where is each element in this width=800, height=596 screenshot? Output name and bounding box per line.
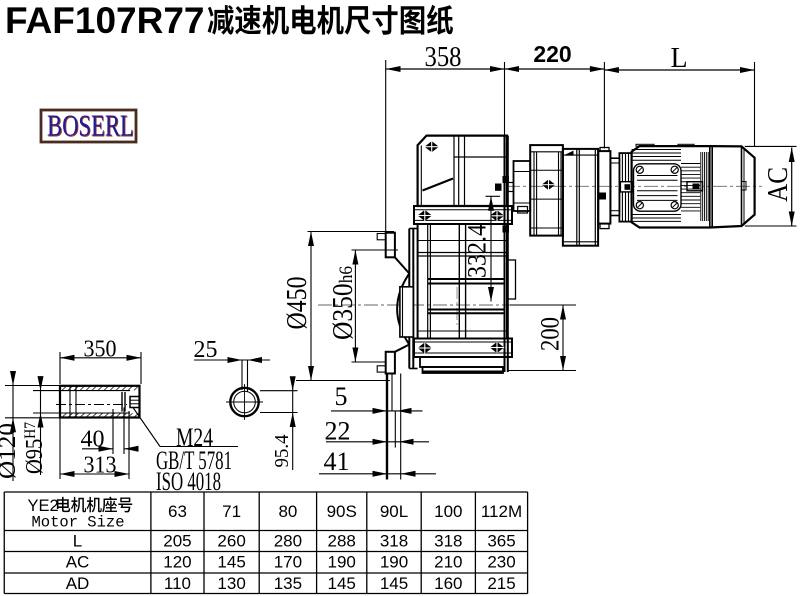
svg-text:BOSERL: BOSERL <box>47 108 134 142</box>
svg-text:110: 110 <box>164 574 191 593</box>
svg-text:230: 230 <box>487 553 515 572</box>
svg-text:288: 288 <box>328 532 356 551</box>
svg-text:170: 170 <box>274 553 302 572</box>
svg-text:100: 100 <box>434 502 462 521</box>
svg-text:318: 318 <box>434 532 462 551</box>
svg-text:YE2: YE2 <box>28 497 59 515</box>
svg-text:Ø450: Ø450 <box>282 277 313 330</box>
svg-text:190: 190 <box>328 553 356 572</box>
svg-text:210: 210 <box>434 553 462 572</box>
svg-text:90S: 90S <box>327 502 357 521</box>
svg-text:AD: AD <box>66 574 90 593</box>
svg-text:215: 215 <box>487 574 515 593</box>
svg-text:120: 120 <box>163 553 191 572</box>
svg-text:365: 365 <box>487 532 515 551</box>
svg-text:350: 350 <box>84 337 117 363</box>
svg-text:332.4: 332.4 <box>463 224 492 278</box>
svg-text:145: 145 <box>217 553 245 572</box>
svg-text:22: 22 <box>325 417 351 446</box>
svg-text:71: 71 <box>222 502 241 521</box>
svg-text:145: 145 <box>328 574 356 593</box>
svg-text:90L: 90L <box>380 502 408 521</box>
svg-text:Motor Size: Motor Size <box>31 514 124 532</box>
svg-text:135: 135 <box>274 574 302 593</box>
svg-text:Ø120: Ø120 <box>0 423 21 479</box>
svg-text:112M: 112M <box>481 502 522 521</box>
svg-text:95.4: 95.4 <box>271 435 293 468</box>
svg-text:80: 80 <box>278 502 297 521</box>
svg-text:190: 190 <box>380 553 408 572</box>
svg-text:Ø95H7: Ø95H7 <box>22 422 48 474</box>
svg-text:AC: AC <box>763 167 794 202</box>
svg-text:Ø350h6: Ø350h6 <box>328 266 359 340</box>
svg-text:205: 205 <box>163 532 191 551</box>
svg-text:AC: AC <box>66 553 90 572</box>
svg-text:145: 145 <box>380 574 408 593</box>
svg-text:160: 160 <box>434 574 462 593</box>
svg-text:318: 318 <box>380 532 408 551</box>
svg-text:200: 200 <box>536 317 565 351</box>
svg-text:5: 5 <box>335 382 348 411</box>
svg-text:FAF107R77: FAF107R77 <box>5 0 205 41</box>
svg-text:L: L <box>73 532 82 551</box>
svg-text:41: 41 <box>324 447 350 476</box>
svg-text:L: L <box>670 43 687 74</box>
svg-text:25: 25 <box>194 337 218 363</box>
svg-text:358: 358 <box>425 42 462 73</box>
svg-text:280: 280 <box>274 532 302 551</box>
svg-text:260: 260 <box>217 532 245 551</box>
svg-text:63: 63 <box>168 502 187 521</box>
svg-text:313: 313 <box>84 453 117 479</box>
svg-text:130: 130 <box>217 574 245 593</box>
svg-text:220: 220 <box>533 41 571 67</box>
svg-text:40: 40 <box>81 427 105 453</box>
